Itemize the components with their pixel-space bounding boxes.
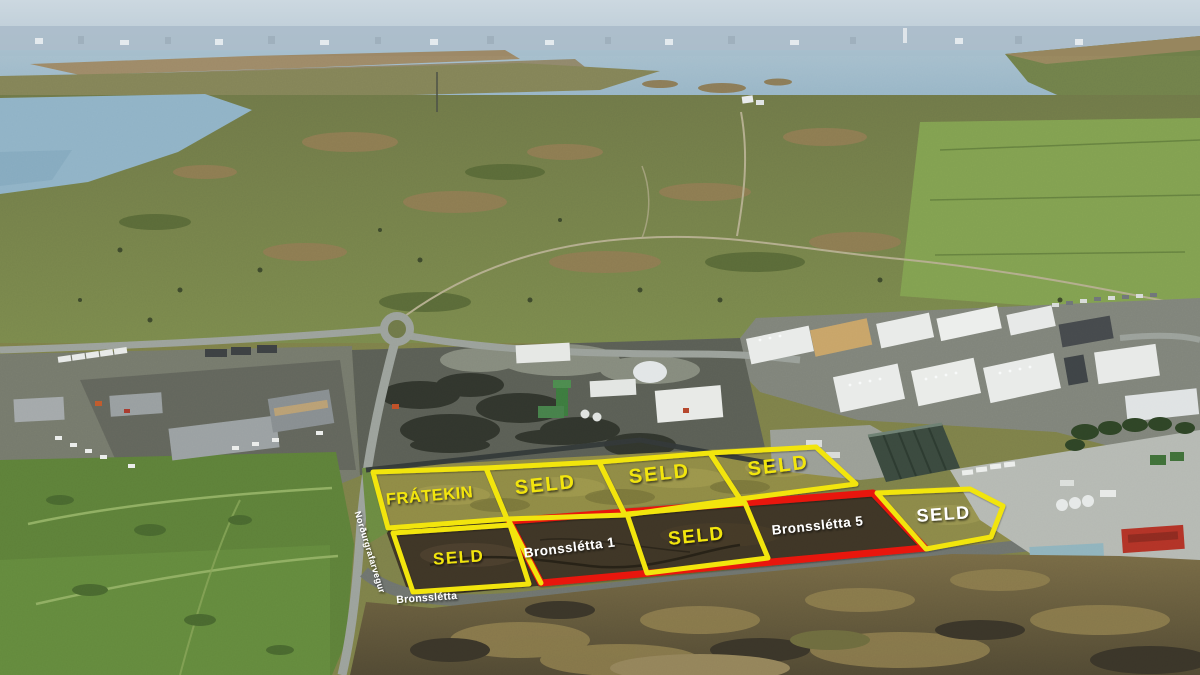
- label-seld-top-3: SELD: [746, 451, 810, 480]
- label-seld-top-1: SELD: [514, 471, 577, 499]
- label-seld-right: SELD: [916, 502, 971, 526]
- label-street-bronssletta-1: Bronsslétta 1: [523, 534, 616, 560]
- plot-overlay: FRÁTEKINSELDSELDSELDSELDSELDSELDBronsslé…: [0, 0, 1200, 675]
- road-label-nordurgrafarvegur: Norðurgrafarvegur: [353, 510, 388, 595]
- label-seld-bottom-left: SELD: [432, 546, 485, 569]
- label-seld-top-2: SELD: [628, 460, 691, 488]
- road-label-bronssletta: Bronsslétta: [396, 590, 458, 606]
- label-fratekin: FRÁTEKIN: [385, 482, 474, 509]
- label-street-bronssletta-5: Bronsslétta 5: [771, 513, 864, 538]
- label-seld-bottom-middle: SELD: [667, 523, 726, 550]
- aerial-photo: FRÁTEKINSELDSELDSELDSELDSELDSELDBronsslé…: [0, 0, 1200, 675]
